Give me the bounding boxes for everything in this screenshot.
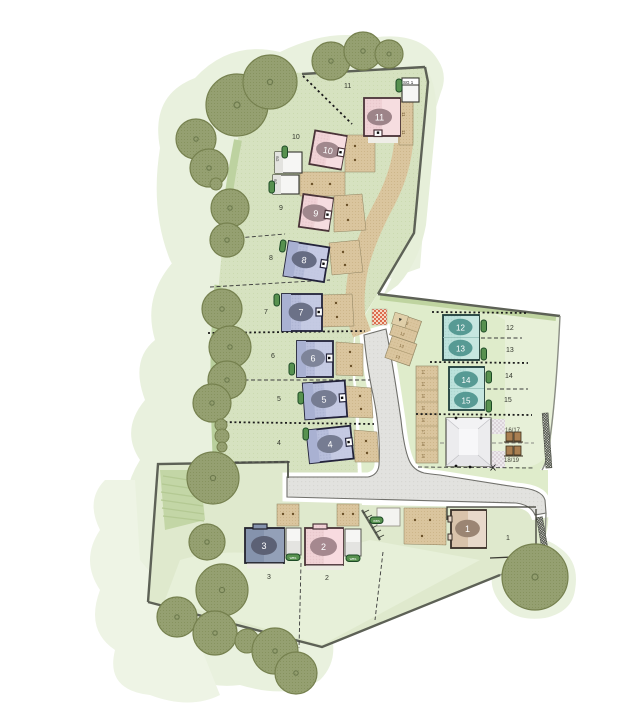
svg-text:13: 13 — [506, 347, 514, 354]
svg-text:11: 11 — [401, 112, 406, 117]
svg-text:16/17: 16/17 — [505, 428, 521, 434]
svg-text:14: 14 — [421, 370, 426, 375]
svg-text:1: 1 — [465, 524, 470, 534]
svg-text:18: 18 — [421, 442, 426, 447]
svg-text:2: 2 — [325, 575, 329, 582]
svg-text:16: 16 — [421, 418, 426, 423]
svg-text:15: 15 — [421, 394, 426, 399]
svg-text:5: 5 — [321, 394, 327, 404]
svg-text:3: 3 — [267, 574, 271, 581]
svg-text:19: 19 — [421, 454, 426, 459]
svg-text:SG: SG — [275, 156, 279, 162]
svg-text:14: 14 — [505, 373, 513, 380]
svg-text:11: 11 — [344, 83, 351, 90]
svg-text:11: 11 — [375, 113, 384, 123]
svg-text:5: 5 — [277, 396, 281, 403]
svg-text:15: 15 — [504, 397, 512, 404]
svg-text:3: 3 — [261, 541, 266, 551]
svg-text:4: 4 — [327, 439, 333, 449]
svg-text:18/19: 18/19 — [504, 458, 520, 464]
svg-text:WBS: WBS — [373, 519, 380, 523]
svg-text:9: 9 — [279, 205, 283, 212]
svg-text:6: 6 — [310, 354, 315, 364]
svg-text:10: 10 — [322, 145, 334, 157]
svg-text:2: 2 — [321, 542, 326, 552]
svg-text:WBS: WBS — [290, 556, 297, 560]
svg-text:12: 12 — [456, 324, 465, 333]
svg-text:4: 4 — [277, 440, 281, 447]
svg-text:WBS: WBS — [350, 557, 357, 561]
svg-text:15: 15 — [421, 406, 426, 411]
svg-text:14: 14 — [421, 382, 426, 387]
svg-text:1: 1 — [506, 535, 510, 542]
svg-text:10: 10 — [292, 134, 300, 141]
svg-text:6: 6 — [271, 353, 275, 360]
svg-text:12: 12 — [506, 325, 514, 332]
svg-text:7: 7 — [298, 308, 303, 318]
svg-text:8: 8 — [269, 255, 273, 262]
svg-text:7: 7 — [264, 309, 268, 316]
svg-text:11: 11 — [401, 130, 406, 135]
svg-text:13: 13 — [456, 345, 465, 354]
svg-text:SG 1: SG 1 — [403, 80, 414, 85]
svg-text:14: 14 — [462, 376, 471, 385]
svg-text:15: 15 — [462, 397, 471, 406]
svg-text:17: 17 — [421, 430, 426, 435]
